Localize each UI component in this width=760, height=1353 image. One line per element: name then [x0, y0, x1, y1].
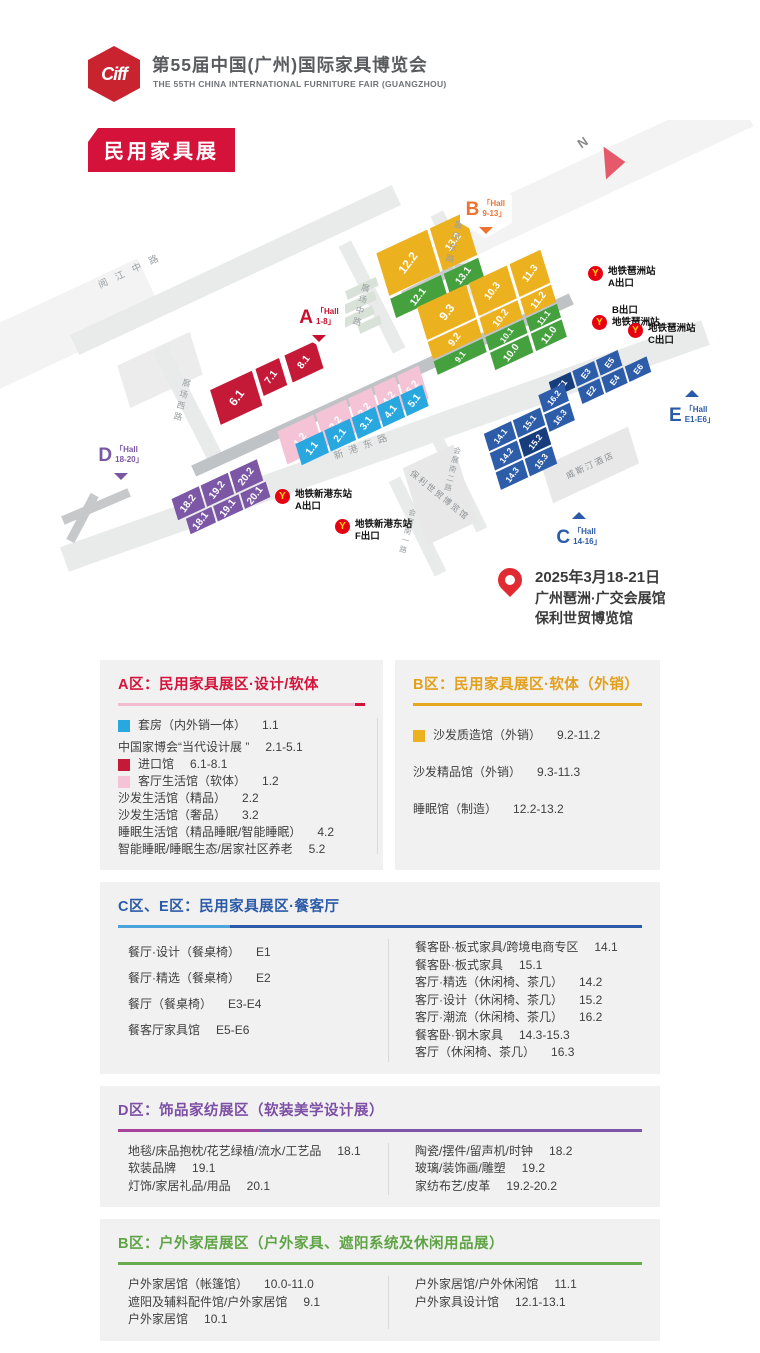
- section-a-panel: A区：民用家具展区·设计/软体 套房（内外销一体） 1.1 中国家博会“当代设计: [100, 660, 383, 870]
- section-b2-left-items: 户外家居馆（帐篷馆） 10.0-11.0 遮阳及辅料配件馆/户外家居馆 9.1 …: [118, 1276, 388, 1329]
- event-date: 2025年3月18-21日: [535, 566, 660, 587]
- metro-icon: Y: [588, 266, 603, 281]
- legend-item-label: 软装品牌: [128, 1160, 176, 1178]
- section-d-left-items: 地毯/床品抱枕/花艺绿植/流水/工艺品 18.1 软装品牌 19.1 灯饰/家居…: [118, 1143, 388, 1196]
- legend-item-code: 14.1: [594, 939, 617, 957]
- legend-item-label: 餐客卧·钢木家具: [415, 1027, 503, 1045]
- legend-item-code: 3.2: [242, 807, 259, 824]
- metro-icon: Y: [275, 489, 290, 504]
- hall-block-7.1: 7.1: [255, 358, 287, 396]
- legend-item: 餐客卧·钢木家具 14.3-15.3: [405, 1027, 642, 1045]
- legend-item: 客厅·设计（休闲椅、茶几） 15.2: [405, 992, 642, 1010]
- legend-item-label: 灯饰/家居礼品/用品: [128, 1178, 231, 1196]
- section-a-title: A区：民用家具展区·设计/软体: [118, 673, 365, 694]
- legend-item-label: 玻璃/装饰画/雕塑: [415, 1160, 506, 1178]
- metro-exit-pazhou-a: Y 地铁琶洲站A出口: [588, 266, 656, 291]
- legend-item: 沙发生活馆（精品） 2.2: [118, 790, 365, 807]
- legend-item: 沙发精品馆（外销） 9.3-11.3: [413, 754, 642, 791]
- section-d-underline: [118, 1129, 642, 1132]
- hall-block-6.1: 6.1: [210, 371, 262, 425]
- legend-item-label: 进口馆: [138, 756, 174, 773]
- hex-badge-hall-e: E「HallE1-E6」: [666, 386, 718, 444]
- legend-item-label: 客厅生活馆（软体）: [138, 773, 246, 790]
- panel-divider: [377, 718, 378, 854]
- legend-item: 户外家具设计馆 12.1-13.1: [405, 1294, 642, 1312]
- legend-item-code: E3-E4: [228, 991, 261, 1017]
- legend-item: 客厅生活馆（软体） 1.2: [118, 773, 365, 790]
- hall-block-8.1: 8.1: [284, 341, 323, 382]
- color-swatch: [118, 776, 130, 788]
- legend-item-code: 6.1-8.1: [190, 756, 227, 773]
- legend-item: 餐厅（餐桌椅） E3-E4: [118, 991, 388, 1017]
- section-b2-right-items: 户外家居馆/户外休闲馆 11.1 户外家具设计馆 12.1-13.1: [388, 1276, 642, 1329]
- legend-item: 沙发质造馆（外销） 9.2-11.2: [413, 717, 642, 754]
- legend-item-code: 2.2: [242, 790, 259, 807]
- hex-pointer: [312, 335, 326, 342]
- legend-item-code: 15.2: [579, 992, 602, 1010]
- color-swatch: [118, 720, 130, 732]
- event-venue-2: 保利世贸博览馆: [535, 608, 633, 628]
- section-b2-title: B区：户外家居展区（户外家具、遮阳系统及休闲用品展）: [118, 1232, 642, 1253]
- metro-exit-xingangdong-a: Y 地铁新港东站A出口: [275, 489, 352, 514]
- venue-map: 威斯汀酒店 保利世贸博览馆 12.2 13.2 12.1 13.1 9.3 10…: [0, 120, 760, 660]
- legend-item-label: 沙发生活馆（精品）: [118, 790, 226, 807]
- legend-item: 客厅（休闲椅、茶几） 16.3: [405, 1044, 642, 1062]
- hex-pointer: [479, 227, 493, 234]
- legend-item-label: 客厅（休闲椅、茶几）: [415, 1044, 535, 1062]
- legend-item: 地毯/床品抱枕/花艺绿植/流水/工艺品 18.1: [118, 1143, 388, 1161]
- legend-item-code: 20.1: [247, 1178, 270, 1196]
- legend-item-label: 餐客卧·板式家具/跨境电商专区: [415, 939, 578, 957]
- legend-item-label: 地毯/床品抱枕/花艺绿植/流水/工艺品: [128, 1143, 321, 1161]
- legend-item-code: E2: [256, 965, 271, 991]
- legend-item: 餐客卧·板式家具 15.1: [405, 957, 642, 975]
- legend-item: 餐厅·精选（餐桌椅） E2: [118, 965, 388, 991]
- compass-n-label: N: [575, 134, 591, 152]
- legend-item-code: 16.3: [551, 1044, 574, 1062]
- section-d-title: D区：饰品家纺展区（软装美学设计展）: [118, 1099, 642, 1120]
- legend-item: 餐客卧·板式家具/跨境电商专区 14.1: [405, 939, 642, 957]
- ciff-logo-text: Ciff: [101, 64, 127, 85]
- legend-item-label: 户外家具设计馆: [415, 1294, 499, 1312]
- metro-icon: Y: [335, 519, 350, 534]
- legend-item-label: 沙发质造馆（外销）: [433, 717, 541, 754]
- legend-item-label: 沙发生活馆（奢品）: [118, 807, 226, 824]
- legend-item: 套房（内外销一体） 1.1: [118, 717, 365, 734]
- hex-badge-hall-c: C「Hall14-16」: [553, 508, 605, 566]
- section-b-title: B区：民用家具展区·软体（外销）: [413, 673, 642, 694]
- legend-item-label: 智能睡眠/睡眠生态/居家社区养老: [118, 841, 293, 858]
- legend-item-label: 睡眠馆（制造）: [413, 791, 497, 828]
- legend-item-code: 10.1: [204, 1311, 227, 1329]
- event-venue-1: 广州琶洲·广交会展馆: [535, 588, 666, 608]
- section-ce-underline: [118, 925, 642, 928]
- legend-item-code: 14.3-15.3: [519, 1027, 570, 1045]
- color-swatch: [413, 730, 425, 742]
- legend-item: 遮阳及辅料配件馆/户外家居馆 9.1: [118, 1294, 388, 1312]
- legend-item: 智能睡眠/睡眠生态/居家社区养老 5.2: [118, 841, 365, 858]
- legend-item-label: 中国家博会“当代设计展 ”: [118, 739, 249, 756]
- legend-item-code: 18.1: [337, 1143, 360, 1161]
- legend-item-label: 餐厅（餐桌椅）: [128, 991, 212, 1017]
- ciff-fair-map-page: Ciff 第55届中国(广州)国际家具博览会 THE 55TH CHINA IN…: [0, 0, 760, 1353]
- legend-item-code: 1.2: [262, 773, 279, 790]
- section-ce-panel: C区、E区：民用家具展区·餐客厅 餐厅·设计（餐桌椅） E1 餐厅·精选（餐桌椅…: [100, 882, 660, 1074]
- legend-item-label: 餐客厅家具馆: [128, 1017, 200, 1043]
- fair-title: 第55届中国(广州)国际家具博览会: [152, 52, 428, 77]
- legend-item: 户外家居馆 10.1: [118, 1311, 388, 1329]
- legend-item-code: E5-E6: [216, 1017, 249, 1043]
- legend-item-code: E1: [256, 939, 271, 965]
- legend-item-code: 9.3-11.3: [537, 754, 580, 791]
- color-swatch: [118, 759, 130, 771]
- cluster-hall-18-20: 18.2 19.2 20.2 18.1 19.1 20.1: [172, 458, 271, 537]
- hex-pointer: [114, 473, 128, 480]
- legend-item-code: 14.2: [579, 974, 602, 992]
- legend-item-label: 睡眠生活馆（精品睡眠/智能睡眠）: [118, 824, 301, 841]
- legend: A区：民用家具展区·设计/软体 套房（内外销一体） 1.1 中国家博会“当代设计: [100, 660, 660, 1341]
- hex-pointer: [572, 512, 586, 519]
- legend-item-label: 家纺布艺/皮革: [415, 1178, 490, 1196]
- hex-pointer: [685, 390, 699, 397]
- ciff-logo: Ciff: [88, 46, 140, 102]
- legend-item-code: 9.1: [303, 1294, 320, 1312]
- legend-item-code: 12.2-13.2: [513, 791, 564, 828]
- legend-item-label: 餐厅·精选（餐桌椅）: [128, 965, 240, 991]
- section-b-panel: B区：民用家具展区·软体（外销） 沙发质造馆（外销） 9.2-11.2 沙发精品: [395, 660, 660, 870]
- metro-icon: Y: [628, 323, 643, 338]
- section-ce-right-items: 餐客卧·板式家具/跨境电商专区 14.1 餐客卧·板式家具 15.1 客厅·精选…: [388, 939, 642, 1062]
- header: Ciff 第55届中国(广州)国际家具博览会 THE 55TH CHINA IN…: [0, 0, 760, 120]
- legend-item: 睡眠生活馆（精品睡眠/智能睡眠） 4.2: [118, 824, 365, 841]
- section-ce-title: C区、E区：民用家具展区·餐客厅: [118, 895, 642, 916]
- metro-icon: Y: [592, 315, 607, 330]
- legend-item-label: 餐客卧·板式家具: [415, 957, 503, 975]
- legend-item: 家纺布艺/皮革 19.2-20.2: [405, 1178, 642, 1196]
- legend-item-label: 陶瓷/摆件/留声机/时钟: [415, 1143, 533, 1161]
- legend-item: 进口馆 6.1-8.1: [118, 756, 365, 773]
- legend-item-code: 1.1: [262, 717, 279, 734]
- legend-item: 灯饰/家居礼品/用品 20.1: [118, 1178, 388, 1196]
- legend-item-label: 遮阳及辅料配件馆/户外家居馆: [128, 1294, 287, 1312]
- legend-item-code: 12.1-13.1: [515, 1294, 566, 1312]
- legend-item: 餐客厅家具馆 E5-E6: [118, 1017, 388, 1043]
- section-d-right-items: 陶瓷/摆件/留声机/时钟 18.2 玻璃/装饰画/雕塑 19.2 家纺布艺/皮革…: [388, 1143, 642, 1196]
- legend-item-code: 16.2: [579, 1009, 602, 1027]
- hex-badge-hall-a: A「Hall1-8」: [293, 288, 345, 346]
- legend-item: 玻璃/装饰画/雕塑 19.2: [405, 1160, 642, 1178]
- location-pin-icon: [493, 563, 527, 597]
- legend-item-code: 9.2-11.2: [557, 717, 600, 754]
- section-b-underline: [413, 703, 642, 706]
- legend-item-label: 套房（内外销一体）: [138, 717, 246, 734]
- section-b-items: 沙发质造馆（外销） 9.2-11.2 沙发精品馆（外销） 9.3-11.3 睡眠: [413, 717, 642, 828]
- legend-item-code: 19.2: [522, 1160, 545, 1178]
- legend-item-code: 15.1: [519, 957, 542, 975]
- legend-item: 餐厅·设计（餐桌椅） E1: [118, 939, 388, 965]
- legend-item: 睡眠馆（制造） 12.2-13.2: [413, 791, 642, 828]
- legend-item-code: 19.1: [192, 1160, 215, 1178]
- hex-badge-hall-d: D「Hall18-20」: [95, 426, 147, 484]
- section-a-items: 套房（内外销一体） 1.1 中国家博会“当代设计展 ” 2.1-5.1 进口馆: [118, 717, 365, 858]
- section-b2-panel: B区：户外家居展区（户外家具、遮阳系统及休闲用品展） 户外家居馆（帐篷馆） 10…: [100, 1219, 660, 1341]
- legend-item: 陶瓷/摆件/留声机/时钟 18.2: [405, 1143, 642, 1161]
- legend-item-label: 餐厅·设计（餐桌椅）: [128, 939, 240, 965]
- legend-item-label: 沙发精品馆（外销）: [413, 754, 521, 791]
- legend-item: 软装品牌 19.1: [118, 1160, 388, 1178]
- hall-block-E6: E6: [625, 356, 651, 382]
- legend-item-label: 客厅·潮流（休闲椅、茶几）: [415, 1009, 563, 1027]
- metro-exit-pazhou-c: Y 地铁琶洲站C出口: [628, 323, 696, 348]
- legend-item-code: 5.2: [309, 841, 326, 858]
- legend-item: 沙发生活馆（奢品） 3.2: [118, 807, 365, 824]
- legend-item-code: 19.2-20.2: [506, 1178, 557, 1196]
- legend-item-label: 客厅·精选（休闲椅、茶几）: [415, 974, 563, 992]
- section-ce-left-items: 餐厅·设计（餐桌椅） E1 餐厅·精选（餐桌椅） E2 餐厅（餐桌椅） E3-E…: [118, 939, 388, 1062]
- legend-item-label: 户外家居馆: [128, 1311, 188, 1329]
- interchange: [61, 488, 131, 524]
- section-b2-underline: [118, 1262, 642, 1265]
- fair-subtitle: THE 55TH CHINA INTERNATIONAL FURNITURE F…: [153, 79, 447, 89]
- section-a-underline: [118, 703, 365, 706]
- metro-exit-xingangdong-f: Y 地铁新港东站F出口: [335, 519, 412, 544]
- legend-item-code: 18.2: [549, 1143, 572, 1161]
- legend-item-label: 客厅·设计（休闲椅、茶几）: [415, 992, 563, 1010]
- legend-item-code: 4.2: [317, 824, 334, 841]
- legend-item-code: 2.1-5.1: [265, 739, 302, 756]
- section-d-panel: D区：饰品家纺展区（软装美学设计展） 地毯/床品抱枕/花艺绿植/流水/工艺品 1…: [100, 1086, 660, 1208]
- legend-item: 中国家博会“当代设计展 ” 2.1-5.1: [118, 739, 365, 756]
- legend-item: 客厅·精选（休闲椅、茶几） 14.2: [405, 974, 642, 992]
- legend-item: 客厅·潮流（休闲椅、茶几） 16.2: [405, 1009, 642, 1027]
